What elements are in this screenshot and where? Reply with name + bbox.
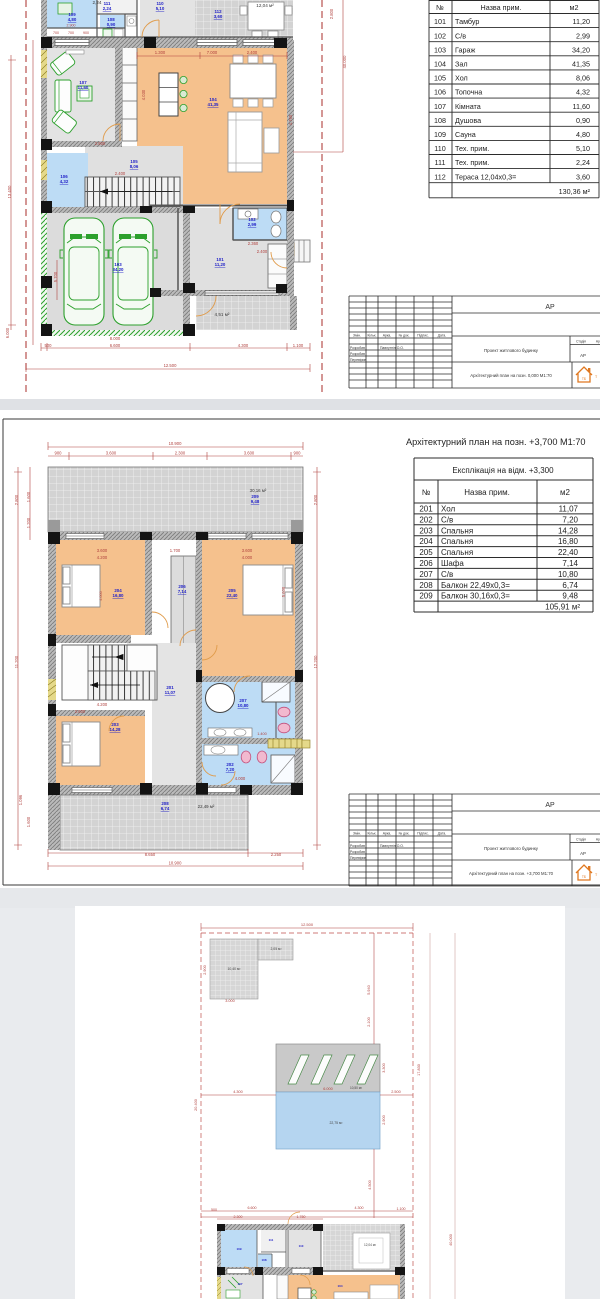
svg-text:АР: АР [580,851,586,856]
svg-text:Хол: Хол [441,505,456,514]
svg-text:Перевірив: Перевірив [350,358,366,362]
svg-text:2.400: 2.400 [247,50,258,55]
svg-text:41,35: 41,35 [208,102,220,107]
svg-text:Перевірив: Перевірив [350,856,366,860]
svg-text:10.900: 10.900 [169,861,182,866]
svg-text:2.500: 2.500 [391,1090,401,1094]
svg-text:№ док.: № док. [399,334,410,338]
svg-text:104: 104 [337,1284,342,1288]
svg-text:5.940: 5.940 [367,985,371,995]
svg-text:7,20: 7,20 [562,515,578,524]
svg-text:2,99: 2,99 [248,222,257,227]
svg-text:Шафа: Шафа [441,559,464,568]
svg-text:12.500: 12.500 [301,922,314,927]
svg-text:Хол: Хол [455,74,468,83]
svg-text:3.300: 3.300 [382,1063,386,1073]
svg-text:12.500: 12.500 [164,363,177,368]
svg-text:16,80: 16,80 [558,537,579,546]
svg-text:8,06: 8,06 [576,74,590,83]
svg-text:4,32: 4,32 [576,88,590,97]
svg-text:40.000: 40.000 [449,1234,453,1246]
svg-text:Тераса 12,04х0,3=: Тераса 12,04х0,3= [455,172,516,181]
svg-text:112: 112 [434,172,445,181]
svg-text:Стадія: Стадія [576,340,586,344]
svg-text:4.300: 4.300 [238,343,249,348]
svg-text:Павлутнін О.О.: Павлутнін О.О. [380,844,404,848]
svg-text:Спальня: Спальня [441,548,473,557]
svg-text:41,35: 41,35 [572,60,590,69]
svg-text:1.096: 1.096 [18,794,23,805]
svg-text:107: 107 [434,102,446,111]
svg-text:2.300: 2.300 [234,1215,243,1219]
svg-text:201: 201 [419,505,433,514]
svg-text:2.100: 2.100 [367,1017,371,1027]
svg-text:900: 900 [83,31,89,35]
svg-text:700: 700 [53,31,59,35]
svg-text:1.400: 1.400 [257,732,267,736]
svg-text:102: 102 [434,31,446,40]
svg-text:11.200: 11.200 [14,655,19,668]
svg-text:4.500: 4.500 [368,1180,372,1190]
svg-text:108: 108 [434,116,446,125]
svg-text:6.000: 6.000 [323,1087,333,1091]
svg-text:10,40 м²: 10,40 м² [228,967,242,971]
svg-text:2.900: 2.900 [95,141,106,146]
svg-text:4,80: 4,80 [68,17,77,22]
svg-text:4.030: 4.030 [141,89,146,100]
svg-text:22,40: 22,40 [227,593,239,598]
svg-text:11,07: 11,07 [559,505,579,514]
svg-text:9,48: 9,48 [251,499,260,504]
svg-text:2.800: 2.800 [313,494,318,505]
svg-text:2,24: 2,24 [103,6,112,11]
svg-text:11,20: 11,20 [573,17,590,26]
svg-text:2.900: 2.900 [382,1115,386,1125]
svg-text:Балкон 30,16х0,3=: Балкон 30,16х0,3= [441,592,510,601]
svg-text:4,51 м²: 4,51 м² [215,312,230,317]
svg-text:209: 209 [419,592,433,601]
svg-text:13.400: 13.400 [7,185,12,198]
svg-text:6,74: 6,74 [562,581,578,590]
svg-text:Павлутнін О.О.: Павлутнін О.О. [380,346,404,350]
svg-text:110: 110 [434,144,445,153]
svg-text:Розробив: Розробив [350,352,365,356]
svg-text:Розробив: Розробив [350,850,365,854]
svg-text:109: 109 [434,130,446,139]
svg-text:5.600: 5.600 [281,586,286,597]
svg-text:7,14: 7,14 [178,589,187,594]
svg-text:900: 900 [294,451,302,456]
svg-text:Назва прим.: Назва прим. [481,3,522,12]
svg-text:11,07: 11,07 [165,690,176,695]
svg-text:12.200: 12.200 [313,655,318,668]
svg-text:Арк.: Арк. [596,340,600,344]
svg-text:0,90: 0,90 [107,22,116,27]
svg-text:1.200: 1.200 [26,517,31,528]
svg-text:11,20: 11,20 [215,262,226,267]
svg-text:104: 104 [434,60,446,69]
svg-text:203: 203 [419,526,433,535]
svg-text:5,10: 5,10 [156,6,165,11]
svg-text:11,60: 11,60 [78,85,89,90]
svg-text:2,99: 2,99 [576,31,590,40]
svg-text:Балкон 22,49х0,3=: Балкон 22,49х0,3= [441,581,510,590]
svg-text:2.900: 2.900 [203,965,207,975]
svg-text:4,80: 4,80 [576,130,590,139]
svg-text:1.100: 1.100 [397,1207,406,1211]
svg-text:С/в: С/в [441,515,453,524]
svg-text:Душова: Душова [455,116,481,125]
svg-text:6.000: 6.000 [5,327,10,338]
svg-text:2,24: 2,24 [576,158,590,167]
svg-text:Кільк.: Кільк. [368,832,377,836]
svg-text:Проект житлового будинку: Проект житлового будинку [484,348,539,353]
svg-text:40.000: 40.000 [342,55,347,68]
svg-text:Тех. прим.: Тех. прим. [455,144,489,153]
svg-text:12,04 м²: 12,04 м² [256,3,274,8]
svg-text:5,10: 5,10 [576,144,590,153]
svg-text:2.600: 2.600 [75,709,86,714]
svg-text:Дата.: Дата. [438,334,447,338]
svg-text:Експлікація на відм. +3,300: Експлікація на відм. +3,300 [452,466,554,475]
svg-text:2.250: 2.250 [271,852,282,857]
svg-text:Топочна: Топочна [455,88,482,97]
svg-text:Підпис.: Підпис. [417,832,429,836]
svg-text:205: 205 [419,548,433,557]
svg-text:10,80: 10,80 [558,570,579,579]
svg-text:Кільк.: Кільк. [368,334,377,338]
svg-text:9,48: 9,48 [562,592,578,601]
svg-text:3,60: 3,60 [576,172,590,181]
svg-text:10,50 м²: 10,50 м² [350,1086,362,1090]
svg-text:м2: м2 [570,3,579,12]
svg-text:3.600: 3.600 [106,451,117,456]
svg-text:Арка.: Арка. [383,334,392,338]
svg-text:202: 202 [419,515,433,524]
svg-text:4.200: 4.200 [97,702,108,707]
svg-text:7,14: 7,14 [562,559,578,568]
svg-text:1.600: 1.600 [26,816,31,827]
svg-text:6,74: 6,74 [161,806,170,811]
svg-text:Тех. прим.: Тех. прим. [455,158,489,167]
svg-text:1.700: 1.700 [170,548,181,553]
svg-text:2,24: 2,24 [93,0,102,5]
svg-text:3.600: 3.600 [97,548,108,553]
svg-text:Розробив: Розробив [350,844,365,848]
svg-text:Архітектурний план на позн. +3: Архітектурний план на позн. +3,700 М1:70 [406,437,586,447]
svg-text:111: 111 [435,158,446,167]
svg-text:Сауна: Сауна [455,130,476,139]
svg-text:2.800: 2.800 [329,8,334,19]
svg-text:11,60: 11,60 [573,102,590,111]
svg-text:С/в: С/в [455,31,466,40]
svg-text:Стадія: Стадія [576,838,586,842]
svg-text:700: 700 [68,31,74,35]
svg-text:Спальня: Спальня [441,537,473,546]
svg-text:Спальня: Спальня [441,526,473,535]
svg-text:АР: АР [580,353,586,358]
svg-text:2.900: 2.900 [67,24,76,28]
svg-text:34,20: 34,20 [572,45,590,54]
svg-text:12,04 м²: 12,04 м² [364,1243,376,1247]
svg-text:22,40: 22,40 [558,548,579,557]
svg-text:14,28: 14,28 [558,526,579,535]
svg-text:8.650: 8.650 [145,852,156,857]
svg-text:Назва прим.: Назва прим. [464,488,510,497]
svg-text:10.900: 10.900 [169,441,182,446]
svg-text:2.300: 2.300 [175,451,186,456]
svg-text:1.600: 1.600 [26,491,31,502]
svg-text:Кімната: Кімната [455,102,481,111]
svg-text:4.000: 4.000 [99,591,103,601]
svg-text:Архітектурний план на позн. 0,: Архітектурний план на позн. 0,000 М1:70 [470,373,552,378]
svg-text:130,36 м²: 130,36 м² [559,187,591,196]
svg-text:2,05 м²: 2,05 м² [270,947,282,951]
svg-text:105: 105 [434,74,446,83]
svg-text:№: № [436,3,444,12]
svg-text:4.200: 4.200 [97,555,108,560]
svg-text:105,91 м²: 105,91 м² [545,603,580,612]
svg-text:№: № [422,488,431,497]
svg-text:14,28: 14,28 [110,727,122,732]
svg-text:22,49 м²: 22,49 м² [198,804,215,809]
svg-text:3.600: 3.600 [242,548,253,553]
svg-text:4.300: 4.300 [233,1090,243,1094]
svg-text:4.000: 4.000 [235,776,246,781]
svg-text:16,80: 16,80 [113,593,125,598]
svg-text:3,60: 3,60 [214,14,223,19]
svg-text:1.100: 1.100 [293,343,304,348]
svg-text:3.600: 3.600 [244,451,255,456]
svg-text:22,75 м²: 22,75 м² [330,1121,344,1125]
svg-text:4,32: 4,32 [60,179,69,184]
svg-text:106: 106 [434,88,446,97]
svg-text:1.300: 1.300 [155,50,166,55]
svg-text:4.000: 4.000 [242,555,253,560]
svg-text:206: 206 [419,559,433,568]
svg-text:Арк.: Арк. [596,838,600,842]
svg-text:204: 204 [419,537,433,546]
svg-text:8,06: 8,06 [130,164,139,169]
svg-text:7,20: 7,20 [226,767,235,772]
svg-text:Розробив: Розробив [350,346,365,350]
svg-text:4.760: 4.760 [288,114,293,125]
svg-text:34,20: 34,20 [113,267,125,272]
svg-text:Дата.: Дата. [438,832,447,836]
svg-text:17.830: 17.830 [417,1064,421,1076]
svg-text:10,80: 10,80 [238,703,250,708]
svg-text:Підпис.: Підпис. [417,334,429,338]
svg-text:6.600: 6.600 [248,1206,257,1210]
svg-text:500: 500 [45,343,53,348]
svg-text:8.000: 8.000 [110,336,121,341]
svg-text:103: 103 [434,45,446,54]
svg-text:2.360: 2.360 [248,241,259,246]
svg-text:500: 500 [211,1208,217,1212]
svg-text:№ док.: № док. [399,832,410,836]
svg-text:30,16 м²: 30,16 м² [250,488,267,493]
svg-text:6.600: 6.600 [110,343,121,348]
svg-text:7.000: 7.000 [207,50,218,55]
svg-text:АР: АР [545,304,555,311]
svg-text:208: 208 [419,581,433,590]
svg-text:Змін.: Змін. [353,832,361,836]
svg-text:С/в: С/в [441,570,453,579]
svg-text:Змін.: Змін. [353,334,361,338]
svg-text:Архітектурний план на позн. +3: Архітектурний план на позн. +3,700 М1:70 [469,871,554,876]
svg-text:АР: АР [545,802,555,809]
svg-text:107: 107 [237,1282,242,1286]
svg-text:900: 900 [55,451,63,456]
svg-text:0,90: 0,90 [576,116,590,125]
svg-text:Гараж: Гараж [455,45,475,54]
svg-text:207: 207 [419,570,433,579]
svg-text:101: 101 [434,17,446,26]
svg-text:108: 108 [261,1258,266,1262]
svg-text:5.700: 5.700 [53,271,58,282]
svg-text:Тамбур: Тамбур [455,17,479,26]
svg-text:1.780: 1.780 [297,1215,306,1219]
svg-text:Проект житлового будинку: Проект житлового будинку [484,846,539,851]
svg-text:2.400: 2.400 [115,171,126,176]
svg-text:110: 110 [299,1244,304,1248]
svg-text:20.400: 20.400 [194,1099,198,1111]
svg-text:м2: м2 [560,488,571,497]
svg-text:2.400: 2.400 [257,249,268,254]
svg-text:Арка.: Арка. [383,832,392,836]
svg-text:109: 109 [236,1247,241,1251]
svg-text:Зал: Зал [455,60,468,69]
svg-text:4.300: 4.300 [355,1206,364,1210]
svg-text:3.000: 3.000 [225,999,235,1003]
svg-text:111: 111 [269,1238,274,1242]
svg-text:2.800: 2.800 [14,494,19,505]
